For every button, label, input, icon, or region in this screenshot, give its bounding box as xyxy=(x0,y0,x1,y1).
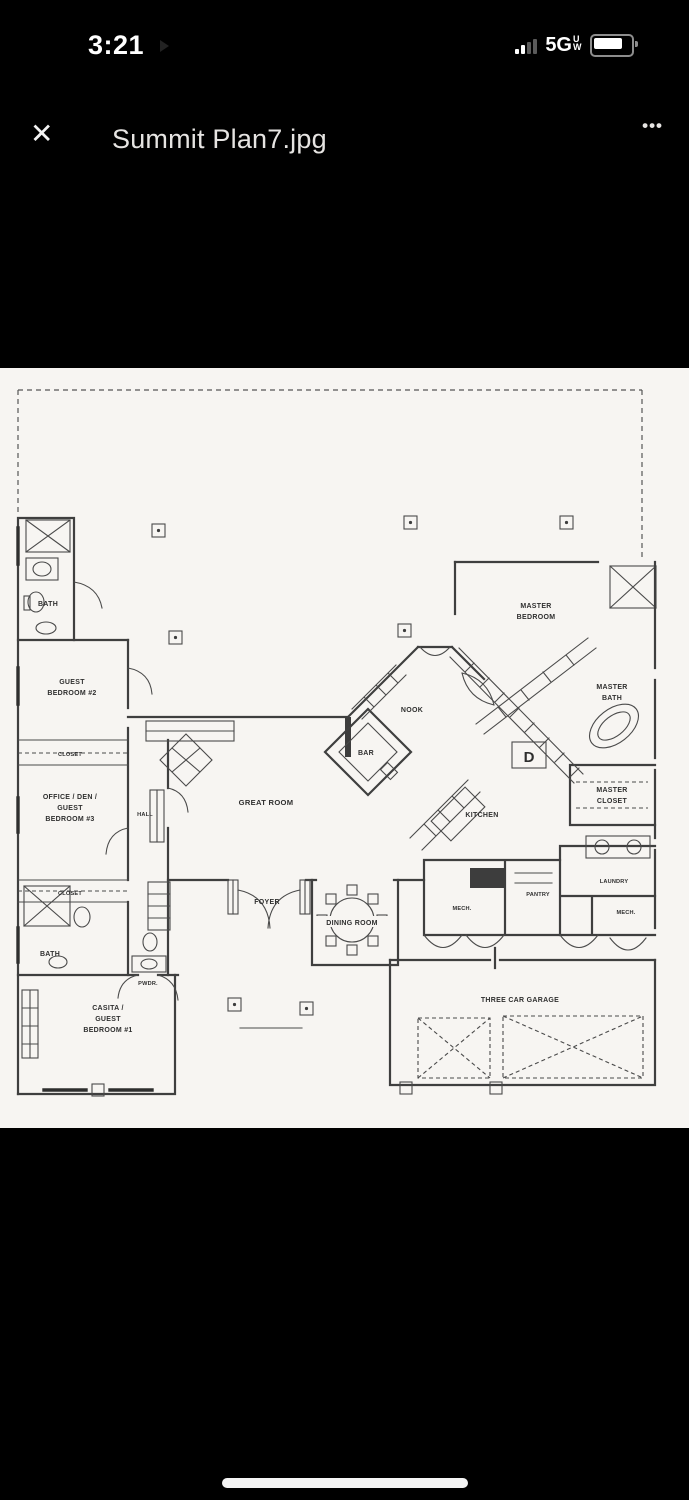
room-label-casita-line1: CASITA / xyxy=(92,1005,124,1012)
room-label-nook: NOOK xyxy=(401,707,423,714)
room-label-foyer: FOYER xyxy=(254,899,280,906)
battery-icon xyxy=(590,34,634,57)
room-label-closet-upper: CLOSET xyxy=(58,752,82,758)
more-options-button[interactable]: ••• xyxy=(642,116,663,136)
room-label-master-line2: BEDROOM xyxy=(517,614,556,621)
room-label-casita-line3: BEDROOM #1 xyxy=(83,1027,132,1034)
room-label-master-bath-line1: MASTER xyxy=(596,684,627,691)
room-label-mech-right: MECH. xyxy=(616,910,635,916)
room-label-master-closet-line1: MASTER xyxy=(596,787,627,794)
room-label-casita-line2: GUEST xyxy=(95,1016,121,1023)
signal-strength-icon xyxy=(515,38,537,54)
patio-columns xyxy=(152,516,573,644)
room-label-guest2-line2: BEDROOM #2 xyxy=(47,690,96,697)
room-label-kitchen: KITCHEN xyxy=(465,812,498,819)
status-time: 3:21 xyxy=(88,30,144,61)
room-label-pwdr: PWDR. xyxy=(138,981,158,987)
phone-screen: 3:21 5G UW ✕ Summit Plan7.jpg ••• xyxy=(0,0,689,1500)
room-label-dining: DINING ROOM xyxy=(326,920,378,927)
room-label-office-line3: BEDROOM #3 xyxy=(45,816,94,823)
room-label-bath-upper: BATH xyxy=(38,601,58,608)
network-uw-label: UW xyxy=(573,35,582,51)
network-type-label: 5G UW xyxy=(545,34,582,57)
room-label-bath-lower: BATH xyxy=(40,951,60,958)
room-label-master-line1: MASTER xyxy=(520,603,551,610)
room-label-closet-lower: CLOSET xyxy=(58,891,82,897)
room-label-garage: THREE CAR GARAGE xyxy=(481,997,559,1004)
floor-plan-image[interactable]: BATH GUEST BEDROOM #2 CLOSET OFFICE / DE… xyxy=(0,368,689,1128)
home-indicator[interactable] xyxy=(222,1478,468,1488)
room-label-master-bath-line2: BATH xyxy=(602,695,622,702)
location-arrow-icon xyxy=(160,40,169,52)
room-label-laundry: LAUNDRY xyxy=(600,879,629,885)
close-button[interactable]: ✕ xyxy=(30,120,53,148)
status-bar: 3:21 5G UW xyxy=(0,0,689,90)
room-label-bar: BAR xyxy=(358,750,374,757)
room-label-master-closet-line2: CLOSET xyxy=(597,798,628,805)
room-label-office-line1: OFFICE / DEN / xyxy=(43,794,97,801)
room-label-pantry: PANTRY xyxy=(526,892,550,898)
network-5g-label: 5G xyxy=(545,34,572,57)
room-label-hall: HALL xyxy=(137,812,153,818)
appliance-d-glyph: D xyxy=(524,749,535,766)
image-viewer-header: ✕ Summit Plan7.jpg ••• xyxy=(0,112,689,172)
file-title: Summit Plan7.jpg xyxy=(112,124,327,155)
room-label-mech-left: MECH. xyxy=(452,906,471,912)
room-label-office-line2: GUEST xyxy=(57,805,83,812)
room-label-great-room: GREAT ROOM xyxy=(239,798,294,807)
patio-dashed-boundary xyxy=(18,390,642,560)
room-label-guest2-line1: GUEST xyxy=(59,679,85,686)
